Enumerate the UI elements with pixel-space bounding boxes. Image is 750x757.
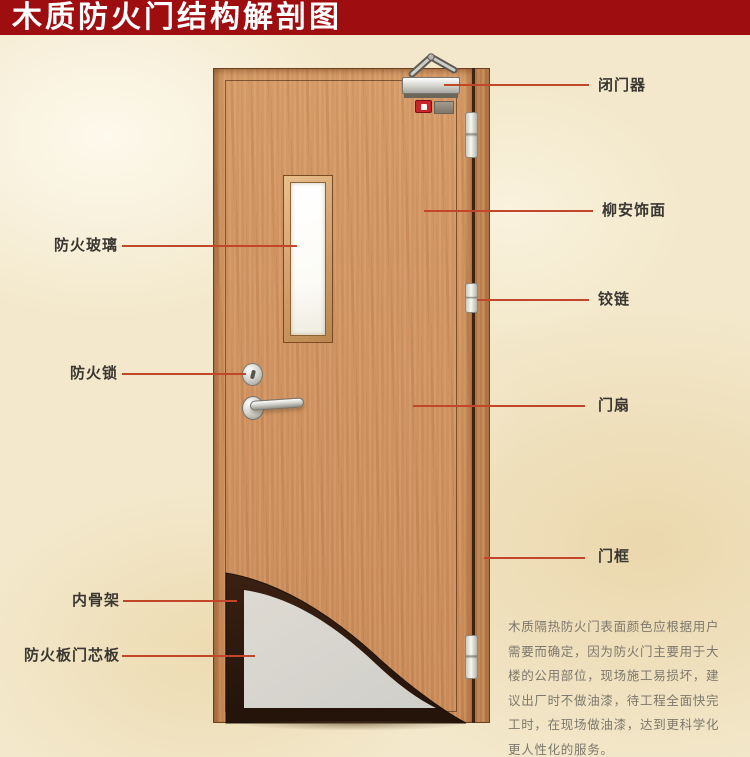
fire-board-core-panel — [244, 590, 436, 708]
red-indicator-device — [415, 100, 432, 113]
gray-mount-plate — [434, 101, 454, 114]
door-closer-arm — [402, 49, 464, 79]
door-frame-strip — [475, 68, 490, 723]
leader-inner-skeleton — [123, 600, 237, 602]
hinge-top — [465, 112, 478, 158]
leader-fire-lock — [122, 373, 246, 375]
door-closer-shadow — [404, 94, 458, 98]
leader-fire-glass — [122, 245, 297, 247]
leader-lauan-veneer — [424, 210, 593, 212]
label-fire-board-core: 防火板门芯板 — [24, 648, 120, 664]
fire-glass-pane — [290, 182, 326, 336]
leader-fire-board-core — [122, 655, 255, 657]
leader-door-leaf — [413, 405, 585, 407]
vision-panel-frame — [283, 175, 333, 343]
label-door-closer: 闭门器 — [598, 78, 646, 94]
leader-door-frame — [484, 557, 585, 559]
label-fire-lock: 防火锁 — [70, 366, 118, 382]
floor-shadow — [202, 721, 506, 737]
page-title: 木质防火门结构解剖图 — [0, 3, 342, 33]
label-hinge: 铰链 — [598, 292, 630, 308]
label-door-leaf: 门扇 — [598, 398, 630, 414]
label-inner-skeleton: 内骨架 — [72, 593, 120, 609]
title-banner: 木质防火门结构解剖图 — [0, 0, 750, 35]
hinge-middle — [465, 283, 478, 313]
description-note: 木质隔热防火门表面颜色应根据用户需要而确定，因为防火门主要用于大楼的公用部位，现… — [508, 615, 726, 757]
label-lauan-veneer: 柳安饰面 — [602, 203, 666, 219]
hinge-bottom — [465, 635, 478, 679]
poster: 木质防火门结构解剖图 — [0, 0, 750, 757]
label-door-frame: 门框 — [598, 549, 630, 565]
label-fire-glass: 防火玻璃 — [54, 238, 118, 254]
leader-door-closer — [444, 84, 589, 86]
leader-hinge — [477, 299, 589, 301]
cutaway-section — [214, 564, 473, 724]
